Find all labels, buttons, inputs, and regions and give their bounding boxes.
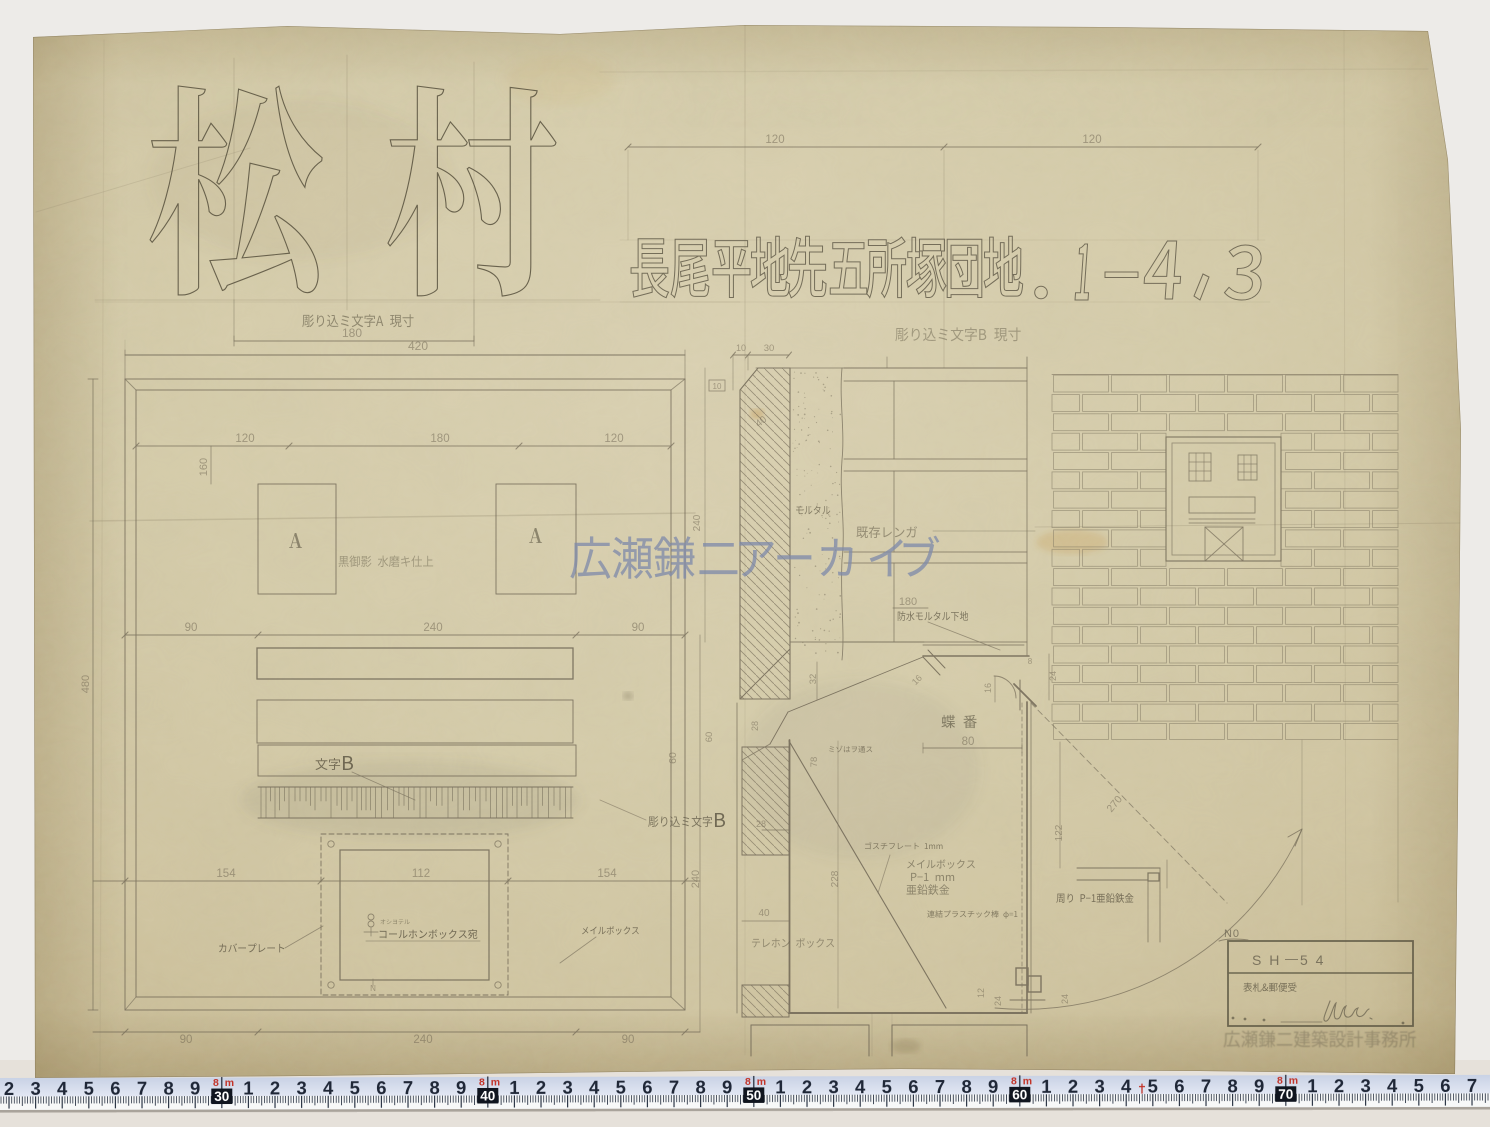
svg-text:240: 240 <box>423 622 442 634</box>
svg-text:10: 10 <box>736 343 746 353</box>
svg-text:90: 90 <box>632 622 645 634</box>
svg-text:90: 90 <box>622 1034 635 1046</box>
svg-text:8: 8 <box>1227 1075 1237 1096</box>
svg-text:120: 120 <box>765 134 784 146</box>
svg-text:40: 40 <box>480 1088 495 1103</box>
svg-text:1: 1 <box>509 1077 519 1098</box>
svg-text:154: 154 <box>216 868 236 880</box>
svg-text:7: 7 <box>137 1078 147 1099</box>
svg-text:4: 4 <box>1121 1076 1132 1097</box>
svg-text:10: 10 <box>713 382 722 391</box>
svg-text:7: 7 <box>935 1076 945 1097</box>
svg-text:6: 6 <box>1174 1076 1184 1097</box>
svg-text:32: 32 <box>808 674 819 685</box>
svg-text:8: 8 <box>1277 1075 1283 1087</box>
svg-text:154: 154 <box>597 868 617 880</box>
svg-text:8: 8 <box>213 1077 219 1089</box>
svg-text:8: 8 <box>1028 657 1033 666</box>
svg-text:28: 28 <box>756 819 766 829</box>
svg-text:4: 4 <box>1387 1075 1398 1096</box>
svg-text:60: 60 <box>1012 1087 1027 1102</box>
svg-text:8: 8 <box>695 1077 705 1098</box>
svg-text:1: 1 <box>1041 1076 1051 1097</box>
svg-text:6: 6 <box>642 1077 652 1098</box>
svg-text:8: 8 <box>163 1078 173 1099</box>
svg-text:7: 7 <box>1467 1075 1477 1096</box>
svg-text:3: 3 <box>1360 1075 1370 1096</box>
svg-text:180: 180 <box>430 433 449 445</box>
svg-text:4: 4 <box>57 1078 68 1099</box>
svg-text:7: 7 <box>403 1077 413 1098</box>
svg-text:120: 120 <box>1082 134 1101 146</box>
svg-text:9: 9 <box>988 1076 998 1097</box>
svg-text:240: 240 <box>692 514 703 531</box>
svg-text:5: 5 <box>1414 1075 1424 1096</box>
svg-text:4: 4 <box>589 1077 600 1098</box>
svg-text:120: 120 <box>604 433 623 445</box>
svg-text:1: 1 <box>775 1076 785 1097</box>
svg-text:9: 9 <box>1254 1075 1264 1096</box>
svg-text:9: 9 <box>456 1077 466 1098</box>
svg-text:24: 24 <box>1060 994 1070 1004</box>
svg-text:6: 6 <box>1440 1075 1450 1096</box>
svg-text:5: 5 <box>616 1077 626 1098</box>
svg-text:5: 5 <box>882 1076 892 1097</box>
svg-text:90: 90 <box>180 1034 193 1046</box>
svg-text:—: — <box>1285 951 1298 966</box>
svg-text:240: 240 <box>690 870 702 888</box>
svg-text:2: 2 <box>1068 1076 1078 1097</box>
svg-text:N: N <box>370 984 376 993</box>
svg-text:3: 3 <box>562 1077 572 1098</box>
svg-text:8: 8 <box>961 1076 971 1097</box>
svg-text:9: 9 <box>722 1076 732 1097</box>
svg-text:70: 70 <box>1278 1087 1293 1102</box>
svg-text:m: m <box>491 1076 500 1088</box>
svg-text:2: 2 <box>270 1077 280 1098</box>
svg-text:112: 112 <box>412 868 430 880</box>
svg-text:8: 8 <box>429 1077 439 1098</box>
svg-text:8: 8 <box>745 1076 751 1088</box>
svg-text:5: 5 <box>1148 1076 1158 1097</box>
svg-text:7: 7 <box>1201 1075 1211 1096</box>
svg-text:8: 8 <box>1011 1075 1017 1087</box>
svg-text:2: 2 <box>536 1077 546 1098</box>
svg-text:m: m <box>1289 1075 1298 1087</box>
svg-text:30: 30 <box>764 343 775 354</box>
svg-text:50: 50 <box>746 1088 761 1103</box>
svg-text:60: 60 <box>667 752 679 764</box>
svg-text:6: 6 <box>376 1077 386 1098</box>
svg-text:5 4: 5 4 <box>1300 952 1325 968</box>
svg-text:122: 122 <box>1054 824 1065 841</box>
svg-text:6: 6 <box>908 1076 918 1097</box>
svg-text:5: 5 <box>350 1077 360 1098</box>
svg-text:6: 6 <box>110 1078 120 1099</box>
svg-text:m: m <box>225 1077 234 1089</box>
svg-text:4: 4 <box>323 1077 334 1098</box>
svg-text:m: m <box>1023 1075 1032 1087</box>
svg-text:24: 24 <box>993 996 1003 1006</box>
svg-text:3: 3 <box>296 1077 306 1098</box>
svg-text:5: 5 <box>84 1078 94 1099</box>
svg-text:2: 2 <box>4 1078 14 1099</box>
svg-text:24: 24 <box>1048 671 1058 681</box>
svg-text:30: 30 <box>214 1089 229 1104</box>
svg-text:160: 160 <box>198 458 210 476</box>
svg-text:3: 3 <box>30 1078 40 1099</box>
svg-text:7: 7 <box>669 1077 679 1098</box>
svg-text:420: 420 <box>408 339 428 353</box>
svg-text:120: 120 <box>235 433 254 445</box>
svg-text:3: 3 <box>828 1076 838 1097</box>
svg-text:60: 60 <box>704 732 715 743</box>
svg-text:28: 28 <box>750 721 760 731</box>
svg-text:2: 2 <box>802 1076 812 1097</box>
svg-text:180: 180 <box>899 596 917 608</box>
svg-text:228: 228 <box>830 870 841 887</box>
svg-text:80: 80 <box>962 736 975 748</box>
svg-text:9: 9 <box>190 1078 200 1099</box>
svg-text:90: 90 <box>185 622 198 634</box>
svg-text:78: 78 <box>809 757 820 768</box>
svg-text:S H: S H <box>1252 952 1281 968</box>
svg-text:16: 16 <box>983 683 993 693</box>
svg-text:480: 480 <box>80 675 92 693</box>
svg-text:40: 40 <box>758 908 770 919</box>
svg-text:m: m <box>757 1076 766 1088</box>
svg-text:1: 1 <box>243 1077 253 1098</box>
svg-text:240: 240 <box>413 1034 432 1046</box>
svg-text:2: 2 <box>1334 1075 1344 1096</box>
svg-text:N0: N0 <box>1224 928 1240 940</box>
svg-text:3: 3 <box>1094 1076 1104 1097</box>
svg-text:1: 1 <box>1307 1075 1317 1096</box>
svg-text:8: 8 <box>479 1076 485 1088</box>
svg-text:4: 4 <box>855 1076 866 1097</box>
svg-text:12: 12 <box>976 988 986 998</box>
svg-text:180: 180 <box>342 326 362 340</box>
